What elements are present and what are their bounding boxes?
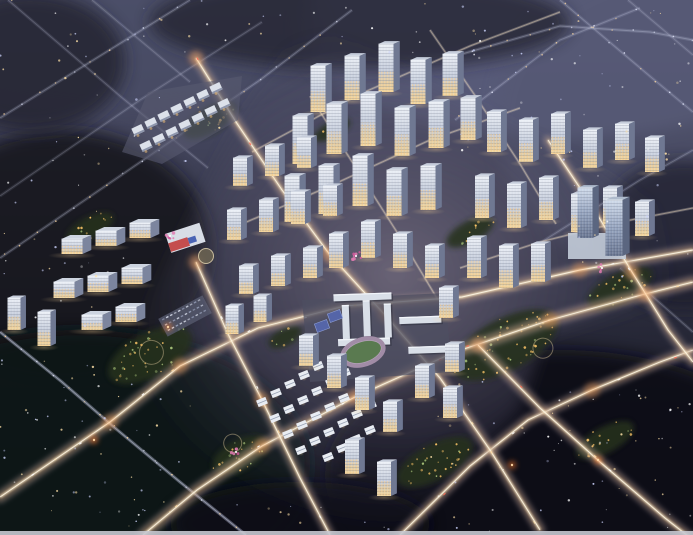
circular-plaza [199,249,214,264]
scene-svg [0,0,693,535]
aerial-rendering-image [0,0,693,535]
bottom-edge-strip [0,531,693,535]
